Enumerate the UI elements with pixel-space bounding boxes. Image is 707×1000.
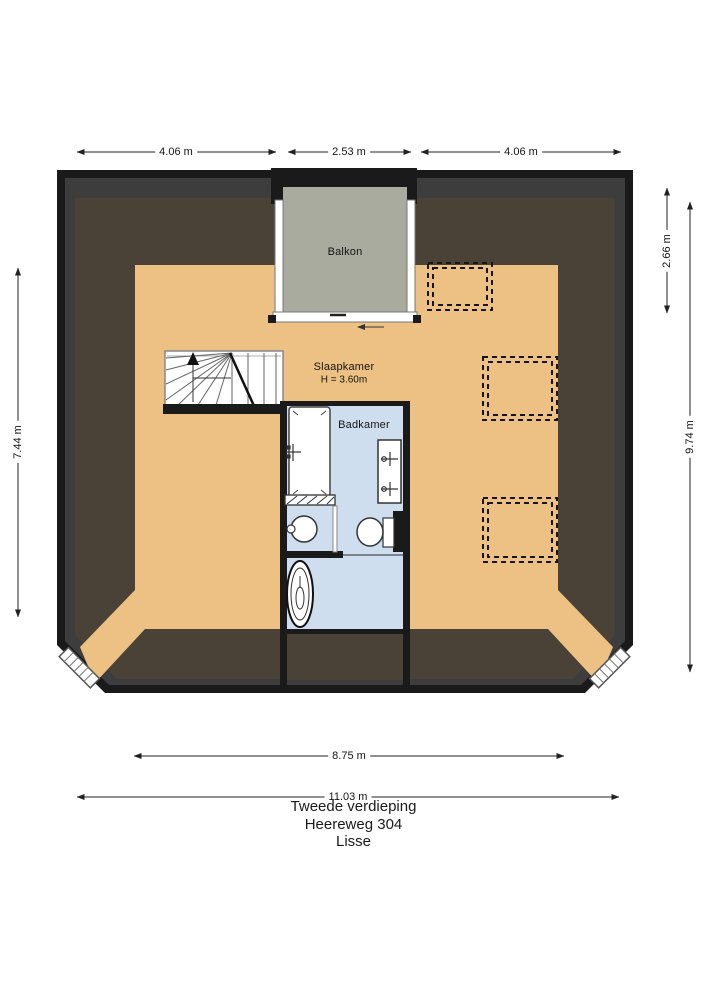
balcony-door-frame-bottom bbox=[273, 312, 417, 322]
plan-title-city: Lisse bbox=[0, 833, 707, 851]
room-label-bathroom: Badkamer bbox=[338, 419, 390, 431]
dim-label-balcony-depth: 2.66 m bbox=[661, 230, 673, 272]
dim-label-bottom-inner: 8.75 m bbox=[328, 750, 370, 762]
dim-label-right-total: 9.74 m bbox=[684, 416, 696, 458]
vanity bbox=[378, 440, 401, 503]
bathroom-wall-left bbox=[280, 401, 287, 685]
bathroom bbox=[280, 401, 410, 685]
balcony-door-frame-left bbox=[275, 200, 283, 320]
balcony-door-frame-right bbox=[407, 200, 415, 320]
radiator bbox=[285, 495, 335, 505]
oval-bath-fixture bbox=[287, 561, 313, 627]
plan-title-floor: Tweede verdieping bbox=[0, 798, 707, 816]
plan-title-street: Heereweg 304 bbox=[0, 816, 707, 834]
plan-title: Tweede verdieping Heereweg 304 Lisse bbox=[0, 798, 707, 851]
room-label-bedroom: Slaapkamer bbox=[314, 361, 375, 373]
dim-label-left-height: 7.44 m bbox=[12, 421, 24, 463]
dim-label-top-center: 2.53 m bbox=[328, 146, 370, 158]
staircase bbox=[163, 351, 292, 414]
bathtub bbox=[286, 407, 330, 498]
floorplan: 4.06 m 2.53 m 4.06 m 2.66 m 9.74 m 7.44 … bbox=[0, 0, 707, 1000]
dim-label-top-left: 4.06 m bbox=[155, 146, 197, 158]
dim-label-top-right: 4.06 m bbox=[500, 146, 542, 158]
bathroom-wall-right bbox=[403, 401, 410, 685]
room-label-balcony: Balkon bbox=[328, 246, 363, 258]
sliding-door bbox=[333, 506, 337, 552]
room-label-bedroom-height: H = 3.60m bbox=[321, 375, 367, 386]
stair-wall bbox=[163, 404, 292, 414]
